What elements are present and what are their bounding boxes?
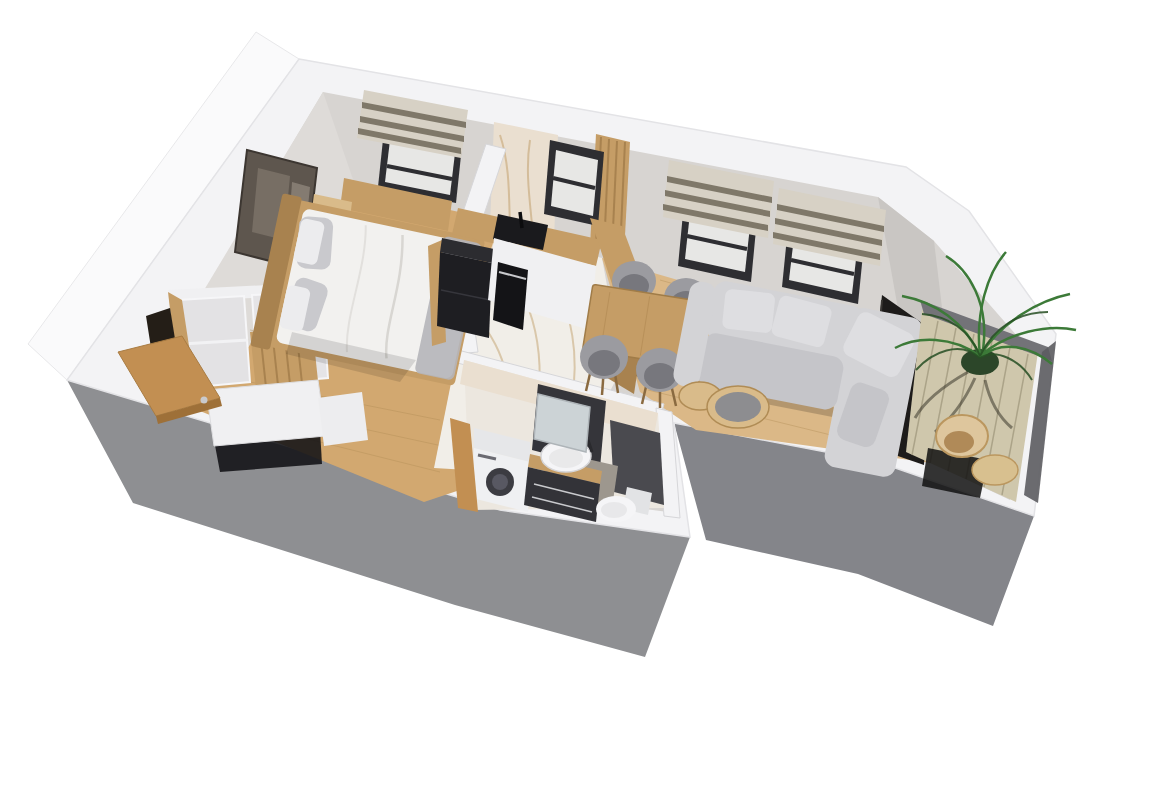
washing-machine-door-glass bbox=[492, 474, 508, 490]
floor-plan-render bbox=[0, 0, 1170, 785]
coffee-table-tray bbox=[715, 392, 761, 422]
toilet-seat bbox=[601, 502, 627, 518]
cushion bbox=[722, 289, 776, 334]
oven bbox=[493, 262, 528, 330]
hall-cabinet bbox=[318, 392, 368, 446]
kitchen-window bbox=[544, 140, 604, 226]
chair-seat bbox=[588, 350, 620, 376]
kitchen-faucet bbox=[520, 212, 522, 228]
hall-sideboard bbox=[206, 380, 326, 446]
balcony-side-table bbox=[972, 455, 1018, 485]
vessel-sink-bowl bbox=[549, 448, 583, 468]
door-handle bbox=[201, 397, 208, 404]
floor-plan-stage bbox=[0, 0, 1170, 785]
washing-machine bbox=[472, 428, 530, 512]
chair-seat bbox=[644, 363, 676, 389]
sofa-cushion bbox=[722, 289, 776, 334]
balcony-chair-seat bbox=[944, 431, 974, 453]
